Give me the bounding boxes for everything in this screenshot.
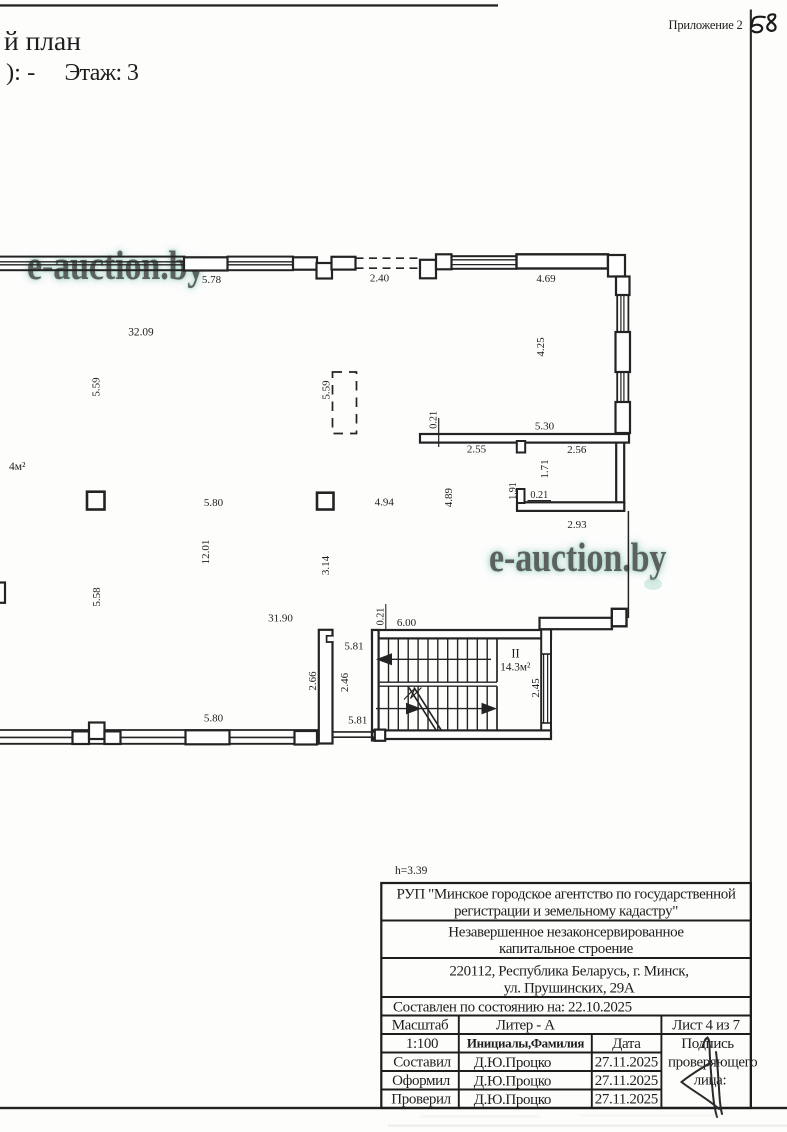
- svg-text:5.58: 5.58: [91, 587, 103, 607]
- svg-text:5.59: 5.59: [320, 380, 332, 400]
- svg-text:5.80: 5.80: [204, 497, 224, 509]
- svg-text:Д.Ю.Процко: Д.Ю.Процко: [474, 1074, 551, 1090]
- svg-text:й план: й план: [4, 25, 81, 56]
- svg-text:Инициалы,Фамилия: Инициалы,Фамилия: [467, 1036, 584, 1051]
- svg-text:Приложение 2: Приложение 2: [669, 18, 743, 32]
- svg-text:1:100: 1:100: [406, 1036, 438, 1052]
- svg-text:II: II: [511, 647, 519, 661]
- svg-text:12.01: 12.01: [200, 540, 212, 565]
- svg-text:0.21: 0.21: [375, 608, 386, 626]
- svg-text:Проверил: Проверил: [391, 1092, 451, 1108]
- svg-text:4.25: 4.25: [535, 337, 547, 357]
- svg-text:3.14: 3.14: [320, 555, 332, 575]
- svg-text:27.11.2025: 27.11.2025: [595, 1055, 658, 1071]
- svg-text:РУП "Минское городское агентст: РУП "Минское городское агентство по госу…: [397, 887, 736, 903]
- svg-text:4м²: 4м²: [9, 461, 26, 473]
- svg-text:Лист 4 из 7: Лист 4 из 7: [672, 1018, 740, 1034]
- svg-text:капитальное строение: капитальное строение: [499, 941, 634, 957]
- svg-text:): -: ): -: [6, 59, 35, 86]
- svg-text:проверяющего: проверяющего: [668, 1055, 757, 1071]
- svg-text:6.00: 6.00: [397, 617, 417, 629]
- svg-text:4.69: 4.69: [536, 273, 556, 285]
- svg-text:Литер - А: Литер - А: [496, 1018, 555, 1034]
- svg-text:0.21: 0.21: [429, 411, 440, 429]
- svg-text:Составил: Составил: [393, 1055, 451, 1071]
- svg-text:27.11.2025: 27.11.2025: [595, 1092, 658, 1108]
- svg-text:Оформил: Оформил: [392, 1073, 451, 1089]
- svg-text:32.09: 32.09: [128, 327, 154, 339]
- svg-text:2.56: 2.56: [567, 444, 587, 456]
- svg-text:Составлен по состоянию на: 22.: Составлен по состоянию на: 22.10.2025: [393, 999, 632, 1015]
- svg-text:h=3.39: h=3.39: [395, 865, 428, 877]
- svg-text:2.66: 2.66: [307, 671, 319, 691]
- svg-text:лица:: лица:: [694, 1073, 726, 1089]
- svg-text:27.11.2025: 27.11.2025: [595, 1073, 658, 1089]
- svg-text:2.40: 2.40: [370, 273, 390, 285]
- svg-text:5.81: 5.81: [344, 641, 363, 653]
- svg-text:5.30: 5.30: [535, 421, 555, 433]
- svg-text:Д.Ю.Процко: Д.Ю.Процко: [474, 1092, 551, 1108]
- svg-text:2.93: 2.93: [567, 519, 587, 531]
- svg-text:Этаж: 3: Этаж: 3: [65, 60, 139, 86]
- svg-text:31.90: 31.90: [268, 613, 293, 625]
- svg-text:4.94: 4.94: [375, 497, 395, 509]
- svg-text:Масштаб: Масштаб: [392, 1018, 449, 1034]
- svg-text:5.78: 5.78: [202, 274, 222, 286]
- svg-text:2.46: 2.46: [339, 672, 351, 692]
- svg-text:регистрации и земельному кадас: регистрации и земельному кадастру": [454, 904, 678, 920]
- svg-text:5.59: 5.59: [91, 377, 103, 397]
- svg-text:1.71: 1.71: [539, 459, 551, 478]
- svg-text:5.81: 5.81: [348, 715, 367, 727]
- svg-text:Незавершенное незаконсервирова: Незавершенное незаконсервированное: [448, 925, 684, 941]
- svg-text:4.89: 4.89: [443, 487, 455, 507]
- svg-text:Д.Ю.Процко: Д.Ю.Процко: [474, 1055, 551, 1071]
- svg-text:220112, Республика Беларусь, г: 220112, Республика Беларусь, г. Минск,: [449, 964, 688, 980]
- svg-text:Дата: Дата: [612, 1036, 641, 1052]
- svg-text:ул. Прушинских, 29А: ул. Прушинских, 29А: [504, 981, 635, 997]
- svg-text:5.80: 5.80: [204, 712, 224, 724]
- svg-text:2.55: 2.55: [467, 444, 487, 456]
- svg-text:2.45: 2.45: [530, 678, 542, 698]
- svg-text:14.3м²: 14.3м²: [500, 662, 531, 674]
- svg-text:0.21: 0.21: [530, 490, 548, 501]
- svg-text:1.91: 1.91: [508, 482, 519, 500]
